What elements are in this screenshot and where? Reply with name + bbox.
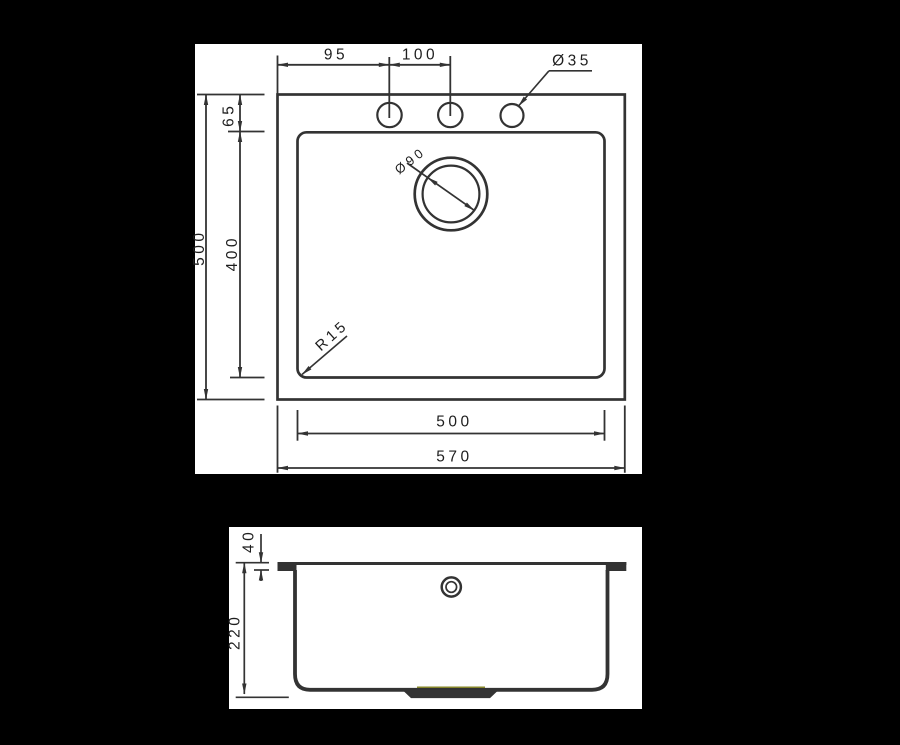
svg-text:500: 500 bbox=[191, 230, 208, 266]
svg-text:95: 95 bbox=[324, 47, 348, 64]
svg-text:100: 100 bbox=[402, 47, 438, 64]
svg-text:400: 400 bbox=[224, 235, 241, 271]
svg-text:500: 500 bbox=[436, 414, 472, 431]
svg-text:65: 65 bbox=[221, 103, 238, 127]
svg-text:220: 220 bbox=[227, 614, 244, 650]
svg-text:570: 570 bbox=[436, 449, 472, 466]
svg-text:40: 40 bbox=[241, 529, 258, 553]
svg-text:Ø35: Ø35 bbox=[552, 53, 592, 70]
